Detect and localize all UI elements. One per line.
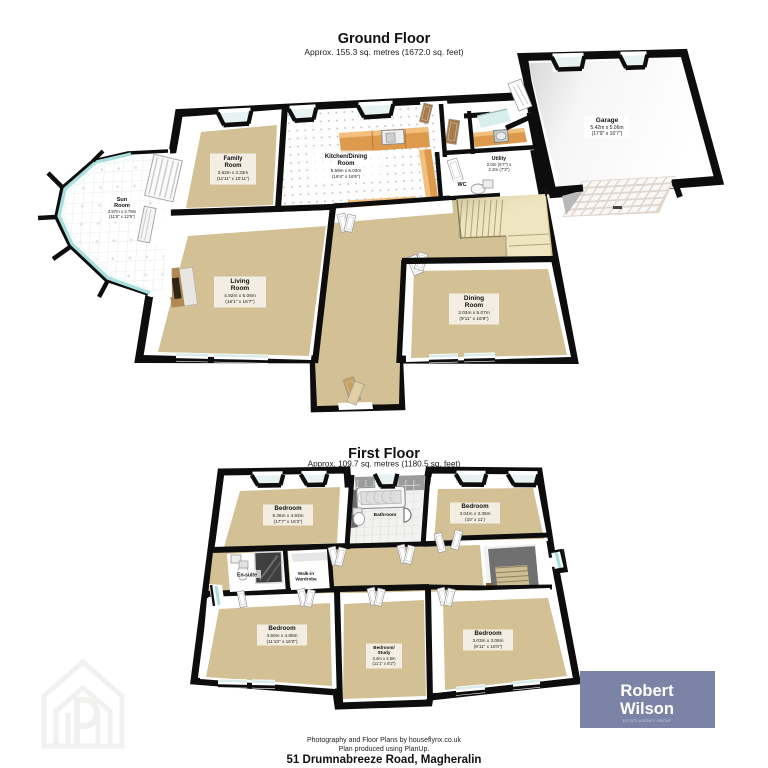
svg-text:4.92m x 5.06m: 4.92m x 5.06m: [224, 293, 256, 299]
svg-text:Garage: Garage: [596, 117, 619, 124]
svg-text:(10' x 11'): (10' x 11'): [465, 517, 485, 522]
svg-text:(9'11" x 10'0"): (9'11" x 10'0"): [474, 644, 503, 649]
svg-text:2.2m (7'3"): 2.2m (7'3"): [488, 167, 510, 172]
svg-text:En-suite: En-suite: [237, 573, 257, 579]
svg-text:(11'10" x 16'0"): (11'10" x 16'0"): [266, 639, 298, 644]
svg-text:5.36m x 4.93m: 5.36m x 4.93m: [272, 513, 303, 518]
svg-text:Ground Floor: Ground Floor: [338, 31, 431, 47]
svg-text:Bedroom: Bedroom: [474, 630, 502, 637]
svg-text:Robert: Robert: [620, 682, 674, 700]
svg-text:(16'1" x 16'7"): (16'1" x 16'7"): [225, 299, 255, 305]
svg-text:(9'11" x 16'8"): (9'11" x 16'8"): [459, 316, 489, 322]
svg-text:(11'1" x 8'2"): (11'1" x 8'2"): [372, 661, 396, 666]
svg-text:3.03m x 5.07m: 3.03m x 5.07m: [458, 310, 490, 316]
svg-text:Bathroom: Bathroom: [374, 512, 397, 518]
svg-text:Bedroom: Bedroom: [461, 503, 489, 510]
svg-text:3.63m x 3.33m: 3.63m x 3.33m: [218, 170, 249, 175]
svg-text:Living: Living: [230, 278, 249, 285]
svg-text:3.60m x 4.88m: 3.60m x 4.88m: [266, 633, 297, 638]
svg-text:Room: Room: [465, 302, 484, 309]
svg-text:Room: Room: [231, 285, 250, 292]
svg-text:5.59m x 5.03m: 5.59m x 5.03m: [331, 168, 362, 173]
svg-text:Wilson: Wilson: [620, 700, 674, 718]
svg-text:(18'4" x 16'6"): (18'4" x 16'6"): [332, 174, 361, 179]
svg-text:(11'8" x 12'5"): (11'8" x 12'5"): [109, 214, 136, 219]
svg-text:WC: WC: [458, 182, 467, 188]
svg-text:3.04m x 3.35m: 3.04m x 3.35m: [459, 511, 490, 516]
svg-text:Family: Family: [223, 156, 243, 162]
svg-text:ESTATE AGENCY GROUP: ESTATE AGENCY GROUP: [623, 718, 672, 723]
svg-text:Bedroom: Bedroom: [274, 505, 302, 512]
svg-text:(17'7" x 16'2"): (17'7" x 16'2"): [274, 519, 303, 524]
svg-text:3.03m x 3.08m: 3.03m x 3.08m: [472, 638, 503, 643]
svg-text:Photography and Floor Plans by: Photography and Floor Plans by houseflyn…: [307, 737, 462, 744]
svg-text:(11'11" x 10'11"): (11'11" x 10'11"): [217, 176, 250, 181]
svg-text:Walk-in: Walk-in: [298, 571, 314, 576]
svg-text:Study: Study: [378, 650, 391, 655]
svg-text:Room: Room: [225, 163, 242, 169]
svg-text:Wardrobe: Wardrobe: [295, 577, 317, 582]
svg-text:(17'9" x 16'7"): (17'9" x 16'7"): [592, 131, 623, 137]
svg-text:Approx. 155.3 sq. metres (1672: Approx. 155.3 sq. metres (1672.0 sq. fee…: [304, 47, 463, 57]
svg-text:Plan produced using PlanUp.: Plan produced using PlanUp.: [339, 746, 430, 753]
svg-text:Kitchen/Dining: Kitchen/Dining: [325, 154, 368, 160]
svg-text:51 Drumnabreeze Road, Magheral: 51 Drumnabreeze Road, Magheralin: [287, 754, 482, 766]
svg-text:Room: Room: [338, 161, 355, 167]
svg-text:Bedroom: Bedroom: [268, 625, 296, 632]
svg-text:Dining: Dining: [464, 295, 484, 302]
